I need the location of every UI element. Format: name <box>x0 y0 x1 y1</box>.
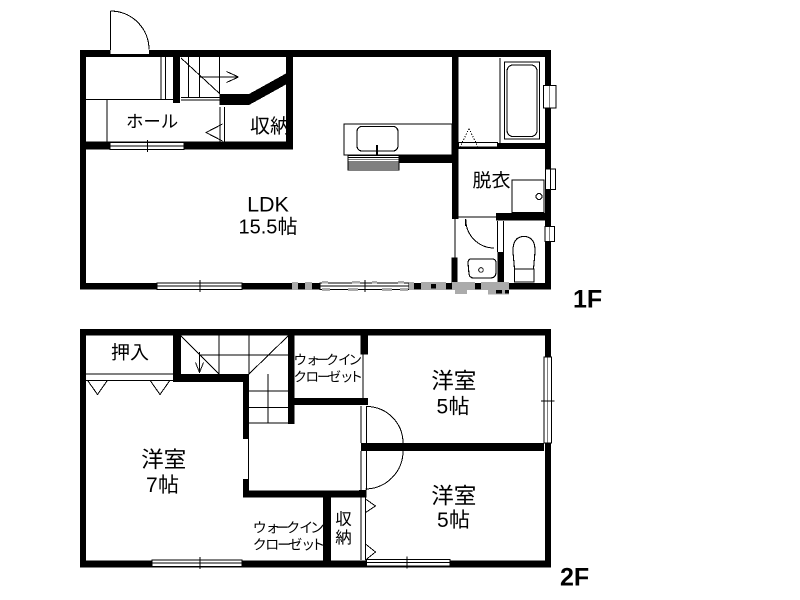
svg-text:2F: 2F <box>560 564 589 592</box>
svg-text:1F: 1F <box>573 286 602 314</box>
svg-text:7: 7 <box>146 474 158 497</box>
svg-text:15.5: 15.5 <box>239 217 278 239</box>
svg-text:LDK: LDK <box>247 193 289 217</box>
svg-text:5: 5 <box>437 396 449 419</box>
svg-text:5: 5 <box>437 509 449 532</box>
